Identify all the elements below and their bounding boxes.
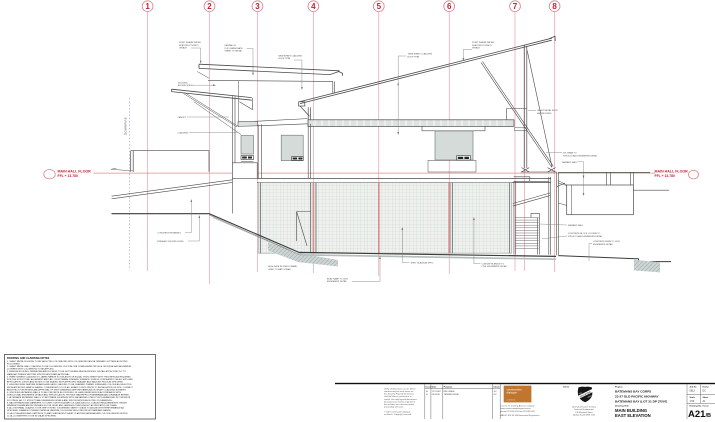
svg-text:Purpose: Purpose: [444, 386, 454, 388]
svg-text:Drawn: Drawn: [703, 386, 710, 389]
svg-text:7.12.2007: 7.12.2007: [432, 391, 442, 393]
svg-text:23-27 OLD PACIFIC HIGHWAY: 23-27 OLD PACIFIC HIGHWAY: [615, 394, 660, 398]
svg-text:NEW SHEET CLADDING: NEW SHEET CLADDING: [279, 54, 303, 57]
svg-text:ROOF TRIM: ROOF TRIM: [408, 56, 420, 58]
svg-text:2: 2: [207, 2, 212, 11]
svg-text:DECKING: DECKING: [178, 82, 188, 84]
svg-text:DANPALON: DANPALON: [225, 44, 237, 47]
svg-text:MAIN HALL FLOOR: MAIN HALL FLOOR: [655, 169, 689, 173]
svg-text:ROOF TRIM: ROOF TRIM: [279, 58, 291, 60]
svg-text:CLADDING: CLADDING: [178, 132, 189, 135]
svg-text:© 2007 construction dialogue: © 2007 construction dialogue: [384, 410, 411, 413]
svg-text:MAIN HALL FLOOR: MAIN HALL FLOOR: [58, 169, 92, 173]
svg-text:STL BEAM TO: STL BEAM TO: [563, 152, 577, 155]
svg-text:ENGINEERS DETAIL: ENGINEERS DETAIL: [593, 243, 614, 246]
svg-text:CONCRETE RETAINING: CONCRETE RETAINING: [157, 232, 181, 235]
svg-text:CONCRETE KERB TO CIVIL: CONCRETE KERB TO CIVIL: [593, 241, 621, 243]
svg-text:Australian Eastern Territory: Australian Eastern Territory: [572, 406, 595, 409]
svg-text:0612: 0612: [690, 390, 696, 393]
svg-text:www.constructiondialogue.com.a: www.constructiondialogue.com.au: [501, 407, 531, 410]
svg-text:DC: DC: [703, 390, 707, 393]
svg-text:Drawing No. / Issue: Drawing No. / Issue: [690, 404, 710, 407]
svg-text:LOUVRES WITH COLORBOND TO BE A: LOUVRES WITH COLORBOND TO BE APPLIED.: [7, 368, 54, 371]
svg-text:5. HIGH BUILDING FEATURE BOARD: 5. HIGH BUILDING FEATURE BOARDS AND FACE…: [7, 383, 132, 386]
svg-text:HIGH GATE IN STEEL FRAME: HIGH GATE IN STEEL FRAME: [268, 265, 297, 268]
svg-text:ROOFING AND CLADDING NOTES: ROOFING AND CLADDING NOTES: [7, 356, 50, 360]
svg-text:dialogue: dialogue: [507, 392, 518, 395]
svg-text:scaled. Use only figured dimen: scaled. Use only figured dimensions.: [384, 398, 418, 401]
svg-text:Check: Check: [493, 386, 500, 388]
svg-text:9. ALL EXTERNAL GLAZING TO BE: 9. ALL EXTERNAL GLAZING TO BE GREY TINTE…: [7, 407, 125, 410]
svg-text:3: 3: [255, 2, 260, 11]
svg-text:DC: DC: [494, 391, 497, 393]
svg-text:ABN 45 678 43 566 Nominated R: ABN 45 678 43 566 Nominated Registration: [501, 414, 540, 417]
svg-text:LINED TO MATCH WALL: LINED TO MATCH WALL: [268, 268, 292, 271]
svg-text:1: 1: [145, 2, 150, 11]
svg-text:6: 6: [447, 2, 452, 11]
svg-text:STRUCTURAL ENGINEERS DETAIL: STRUCTURAL ENGINEERS DETAIL: [563, 154, 598, 157]
svg-text:BATEMANS BAY CORPS: BATEMANS BAY CORPS: [615, 389, 651, 393]
svg-text:AS SPECIFIED: AS SPECIFIED: [537, 112, 552, 115]
svg-text:1. SHEET METAL ROOFING TO BE S: 1. SHEET METAL ROOFING TO BE SELECTED CO…: [7, 360, 128, 363]
svg-text:RADIANT WALL: RADIANT WALL: [562, 161, 578, 164]
svg-text:STRUCTURAL ENGINEERS DETAILS A: STRUCTURAL ENGINEERS DETAILS AND SPECIFI…: [7, 394, 130, 397]
svg-text:FFL + 13.780: FFL + 13.780: [655, 174, 676, 178]
svg-text:11. ALL DOWNPIPES TO BE 90 DIA: 11. ALL DOWNPIPES TO BE 90 DIA AS SPECIF…: [7, 414, 57, 417]
svg-text:29.04.08: 29.04.08: [432, 394, 441, 396]
svg-text:phone 02 9318 2411 fax 02 931: phone 02 9318 2411 fax 02 9318 2422: [501, 411, 536, 413]
svg-text:architects. Copyright reserved: architects. Copyright reserved.: [384, 413, 412, 416]
svg-text:ARCHITECT FOR REVIEW AND APPRO: ARCHITECT FOR REVIEW AND APPROVAL OF SHO…: [7, 388, 126, 391]
svg-text:commencing the work shown on: commencing the work shown on: [384, 390, 413, 393]
svg-text:RADIANT WALL: RADIANT WALL: [568, 224, 584, 227]
svg-text:FFL + 13.780: FFL + 13.780: [58, 174, 79, 178]
svg-text:Project: Project: [615, 386, 623, 389]
svg-text:APPLICATION. JOINTS AND EDGES: APPLICATION. JOINTS AND EDGES TO BE SEAL…: [7, 381, 124, 384]
svg-text:CONCRETE ANGLE TO: CONCRETE ANGLE TO: [482, 262, 505, 265]
svg-text:4. FIBRE CEMENT CLADDING TO JA: 4. FIBRE CEMENT CLADDING TO JAMES HARDIE…: [7, 375, 131, 378]
svg-text:VISIBLE: VISIBLE: [179, 48, 187, 50]
svg-text:CANOPY: CANOPY: [178, 116, 187, 119]
svg-text:6. SPECIFIED RETAINING WALLS T: 6. SPECIFIED RETAINING WALLS TO BE CONCR…: [7, 391, 121, 394]
svg-text:architects: architects: [507, 398, 516, 401]
svg-text:Sheet: Sheet: [703, 396, 709, 399]
svg-text:4: 4: [311, 2, 316, 11]
svg-text:EAST ELEVATION: EAST ELEVATION: [615, 413, 651, 418]
svg-text:POLYCARBONATE: POLYCARBONATE: [225, 47, 244, 50]
svg-text:Sydney South NSW 1235: Sydney South NSW 1235: [573, 413, 595, 416]
svg-text:7: 7: [513, 2, 518, 11]
svg-text:SHEET METAL ROOF: SHEET METAL ROOF: [537, 109, 558, 112]
svg-text:Job No: Job No: [690, 387, 698, 389]
svg-text:SUBSTRUCTURE IS: SUBSTRUCTURE IS: [472, 45, 492, 47]
svg-text:FOR THE STRUCTURE, ALIGNMENT A: FOR THE STRUCTURE, ALIGNMENT AND FALL OF…: [7, 378, 133, 381]
svg-text:1:50: 1:50: [690, 400, 695, 403]
svg-text:Date: Date: [432, 385, 438, 388]
svg-text:TERN SHEET CLADDING: TERN SHEET CLADDING: [408, 53, 433, 56]
svg-text:DC: DC: [494, 394, 497, 396]
svg-text:FROM APPROVED SAMPLE RANGE. CO: FROM APPROVED SAMPLE RANGE. CONFIRM SETO…: [7, 386, 133, 389]
svg-text:REV ISSUE: REV ISSUE: [444, 391, 456, 393]
svg-text:Client: Client: [563, 385, 569, 388]
svg-text:Scale: Scale: [690, 397, 696, 399]
svg-text:SUBSTRUCTURE IS: SUBSTRUCTURE IS: [179, 45, 199, 47]
svg-text:Territorial Headquarters: Territorial Headquarters: [574, 408, 594, 411]
svg-text:CONCRETE BLOCK COLUMN TO: CONCRETE BLOCK COLUMN TO: [568, 233, 601, 235]
svg-text:STRUCTURAL ENGINEERS DETAIL: STRUCTURAL ENGINEERS DETAIL: [568, 235, 603, 238]
svg-text:BATEMANS BAY (LOT 31 DP 37507): BATEMANS BAY (LOT 31 DP 37507): [615, 399, 667, 403]
svg-text:GREY GLASS AS SPEC: GREY GLASS AS SPEC: [411, 261, 434, 264]
svg-text:SHEET TO METAL: SHEET TO METAL: [225, 50, 243, 53]
svg-text:140 Elizabeth Street: 140 Elizabeth Street: [575, 411, 593, 414]
svg-text:MANUFACTURERS WRITTEN SPECIFIC: MANUFACTURERS WRITTEN SPECIFICATION AND …: [7, 373, 70, 376]
svg-text:Verify all dimensions on site: Verify all dimensions on site before: [384, 387, 416, 390]
svg-text:the architect for a decision b: the architect for a decision before: [384, 403, 415, 406]
svg-text:MINIMUM 1000MM ABOVE FINISHED: MINIMUM 1000MM ABOVE FINISHED FLOOR LEVE…: [7, 404, 118, 407]
svg-text:this drawing. Figured dimensio: this drawing. Figured dimensions: [384, 393, 414, 396]
svg-text:Discrepancies shall be reporte: Discrepancies shall be reported to: [384, 400, 416, 403]
svg-text:ENGINEERS DETAIL: ENGINEERS DETAIL: [327, 280, 348, 283]
svg-text:8: 8: [552, 2, 557, 11]
svg-text:VISIBLE: VISIBLE: [472, 48, 480, 50]
svg-text:BOAT RAMP TO CIVIL: BOAT RAMP TO CIVIL: [327, 277, 349, 280]
svg-text:SPECIFIED. FRAMES POWDERCOATED: SPECIFIED. FRAMES POWDERCOATED ALUMINIUM…: [7, 409, 112, 412]
svg-text:TENDER ISSUE: TENDER ISSUE: [444, 394, 460, 396]
svg-text:10. ALL FLASHINGS AND CAPPINGS: 10. ALL FLASHINGS AND CAPPINGS TO MATCH …: [7, 412, 128, 415]
svg-text:3. ENSURE ROOFING, PERIMETER A: 3. ENSURE ROOFING, PERIMETER AND ROOFING…: [7, 370, 126, 373]
svg-text:7. ALTERNATE RETAINING WALLS T: 7. ALTERNATE RETAINING WALLS TO BE TIMBE…: [7, 396, 131, 399]
svg-text:POINT WHERE METAL: POINT WHERE METAL: [472, 41, 495, 44]
svg-text:5: 5: [377, 2, 382, 11]
svg-text:2. SHEET METAL WALL CLADDING T: 2. SHEET METAL WALL CLADDING TO BE COLOR…: [7, 365, 131, 368]
svg-text:FINISHED GROUND LEVEL: FINISHED GROUND LEVEL: [157, 241, 184, 243]
svg-text:Level 1, 77 Dunning Avenue, ro: Level 1, 77 Dunning Avenue, rosebery: [501, 405, 535, 408]
svg-text:proceeding with work.: proceeding with work.: [384, 406, 404, 409]
svg-text:CIVIL ENGINEERS DETAIL: CIVIL ENGINEERS DETAIL: [482, 265, 508, 268]
svg-text:FOOTINGS, ALL TO STRUCTURAL EN: FOOTINGS, ALL TO STRUCTURAL ENGINEERS DE…: [7, 399, 113, 402]
svg-text:8. BALUSTRADES AND BARRIERS TO: 8. BALUSTRADES AND BARRIERS TO COMPLY WI…: [7, 401, 128, 404]
svg-text:POINT WHERE METAL: POINT WHERE METAL: [179, 41, 202, 44]
svg-text:AS SPECIFIED: AS SPECIFIED: [178, 84, 193, 87]
svg-text:shall be taken in preference t: shall be taken in preference to: [384, 395, 412, 398]
svg-text:DOWNPIPE: DOWNPIPE: [124, 117, 128, 135]
